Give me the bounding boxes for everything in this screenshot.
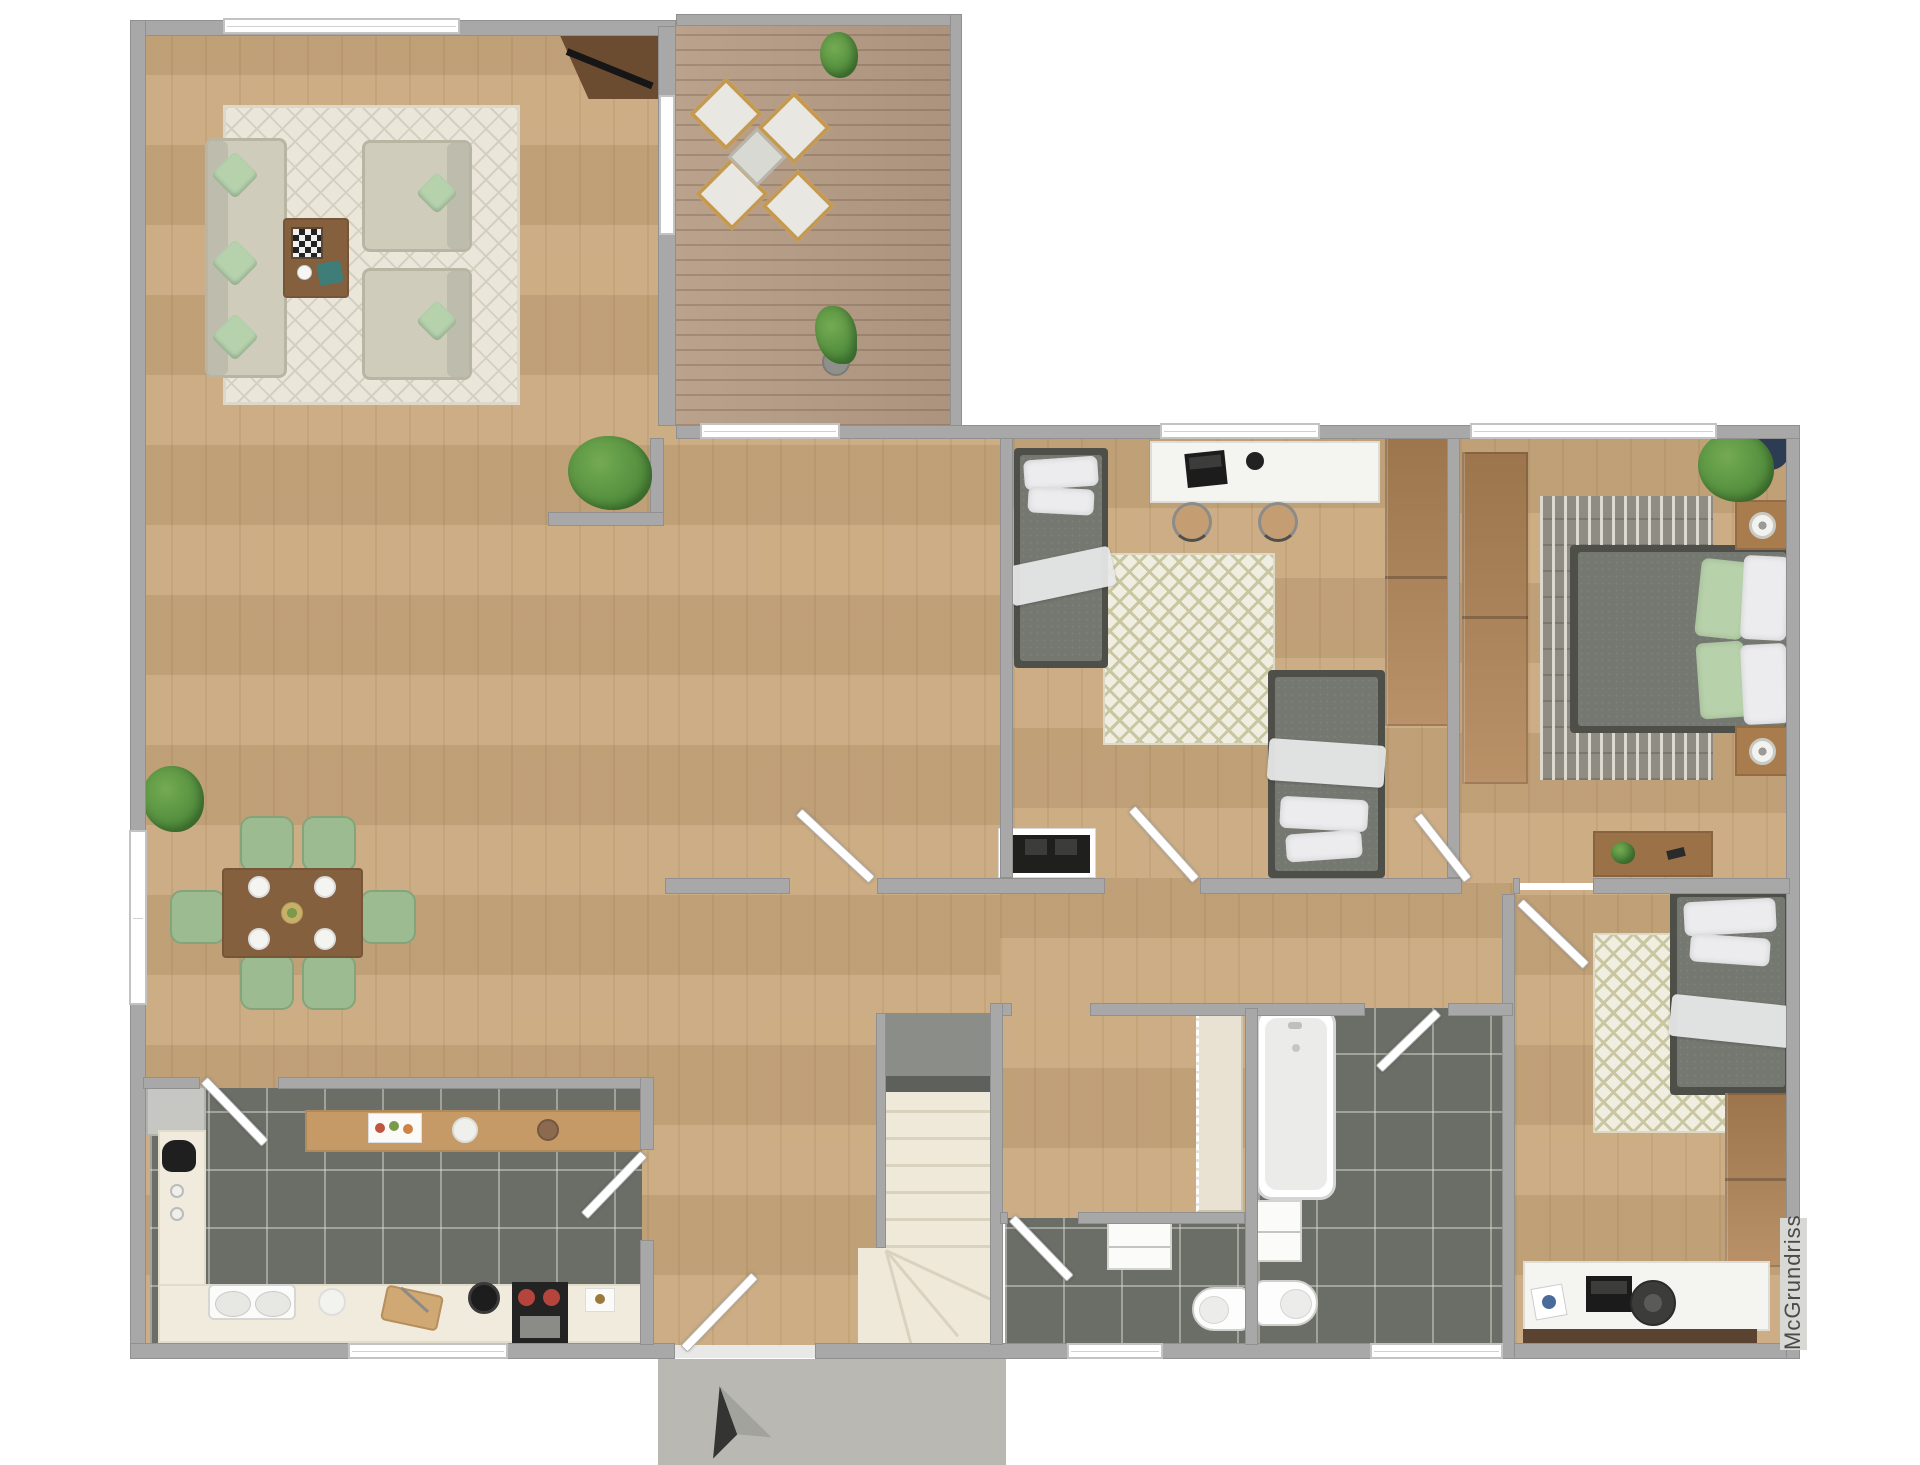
counter-plate — [318, 1288, 346, 1316]
floor-plan-canvas: McGrundriss — [0, 0, 1920, 1465]
book — [316, 260, 343, 286]
counter-item — [585, 1288, 615, 1312]
bathroom-toilet — [1256, 1280, 1318, 1326]
wall-bath-wc — [1245, 1008, 1258, 1345]
kitchen-window — [348, 1343, 508, 1359]
bathtub-drain — [1292, 1044, 1300, 1052]
dining-plate-1 — [248, 876, 270, 898]
wall-stairs-left — [990, 1003, 1003, 1345]
wc-cabinet-line — [1109, 1246, 1170, 1248]
sink-basin-right — [255, 1291, 291, 1317]
master-desk — [1593, 831, 1713, 877]
dining-centerpiece — [281, 902, 303, 924]
double-sink — [208, 1284, 296, 1320]
kids-wardrobe-line — [1385, 576, 1450, 579]
master-plant — [1698, 432, 1774, 502]
kids-bed-1-pillow-2 — [1027, 486, 1094, 515]
wall-kids-master — [1447, 438, 1460, 878]
dining-window — [129, 830, 147, 1005]
kitchen-knob-1 — [170, 1184, 184, 1198]
fruit-green — [389, 1121, 399, 1131]
kids-sideboard-body — [1006, 835, 1090, 873]
master-desk-phone — [1666, 847, 1686, 860]
kids-desk — [1150, 441, 1380, 503]
bedroom3-laptop-screen — [1591, 1281, 1627, 1294]
wall-bottom-east — [815, 1343, 1800, 1359]
stair-rail-wall — [876, 1013, 886, 1248]
wall-wc-top-2 — [1078, 1212, 1245, 1224]
dining-chair-right — [360, 890, 416, 944]
kids-window — [1160, 423, 1320, 439]
wall-wc-top-1 — [1000, 1212, 1008, 1224]
wc-toilet-seat — [1199, 1296, 1229, 1324]
dining-plant — [142, 766, 204, 832]
bathtub-faucet — [1288, 1022, 1302, 1029]
master-desk-plant — [1611, 842, 1635, 864]
kids-desk-chair-2 — [1258, 502, 1298, 542]
wall-kitchen-right-2 — [640, 1240, 654, 1345]
master-wardrobe — [1462, 452, 1528, 784]
kids-bed-2-pillow-2 — [1285, 829, 1363, 862]
burner-2 — [543, 1289, 560, 1306]
wall-kitchen-top-2 — [278, 1077, 652, 1089]
wall-corridor-bottom-2 — [1090, 1003, 1365, 1016]
counter-item-dot — [595, 1294, 605, 1304]
kids-bed-1-pillow-1 — [1023, 455, 1099, 490]
hall-window — [700, 423, 840, 439]
kids-desk-lamp — [1246, 452, 1264, 470]
oven-front — [520, 1316, 560, 1338]
burner-1 — [518, 1289, 535, 1306]
bedroom3-wardrobe-line — [1725, 1178, 1790, 1181]
kids-sideboard-drawer-2 — [1055, 839, 1077, 855]
stair-landing-edge — [886, 1076, 1003, 1092]
coffee-maker — [162, 1140, 196, 1172]
kids-rug — [1103, 553, 1275, 745]
master-wardrobe-line — [1462, 616, 1528, 619]
bar-plate — [452, 1117, 478, 1143]
kids-laptop-screen — [1189, 454, 1222, 469]
hall-plant — [568, 436, 652, 510]
wall-corridor-bottom-3 — [1448, 1003, 1513, 1016]
terrace-plant-1 — [820, 32, 858, 78]
dining-chair-left — [170, 890, 226, 944]
wall-hall-rooms-3 — [1200, 878, 1462, 894]
kids-laptop — [1184, 450, 1227, 488]
bedroom3-desk-chair — [1630, 1280, 1676, 1326]
armchair-2 — [362, 268, 472, 380]
living-window — [223, 18, 460, 34]
master-lamp-2 — [1749, 738, 1776, 765]
stair-flight — [886, 1092, 1003, 1248]
chessboard — [291, 227, 323, 259]
dining-plate-2 — [314, 876, 336, 898]
dining-chair-bottom-1 — [240, 954, 294, 1010]
stair-landing — [886, 1013, 1003, 1083]
master-lamp-1 — [1749, 512, 1776, 539]
bathroom-window — [1370, 1343, 1503, 1359]
entry-threshold — [675, 1345, 815, 1358]
kitchen-knob-2 — [170, 1207, 184, 1221]
kids-sideboard-drawer-1 — [1025, 839, 1047, 855]
wall-hall-rooms-1 — [665, 878, 790, 894]
wc-wall-cabinet — [1107, 1222, 1172, 1270]
wall-kids-left — [1000, 438, 1013, 878]
master-pillow-white-1 — [1740, 555, 1790, 641]
wall-kitchen-right-1 — [640, 1077, 654, 1150]
cooking-pot — [468, 1282, 500, 1314]
watermark-text: McGrundriss — [1780, 1218, 1807, 1350]
sink-basin-left — [215, 1291, 251, 1317]
bar-bowl — [537, 1119, 559, 1141]
bedroom3-sill — [1523, 1329, 1757, 1343]
bedroom3-laptop — [1586, 1276, 1632, 1312]
master-window — [1470, 423, 1717, 439]
storage-closet — [1196, 1012, 1243, 1212]
wall-bedroom3-left — [1502, 894, 1515, 1359]
wall-terrace-top — [676, 14, 962, 26]
wc-window — [1067, 1343, 1163, 1359]
bar-tray — [368, 1113, 422, 1143]
dining-chair-top-1 — [240, 816, 294, 872]
dining-chair-bottom-2 — [302, 954, 356, 1010]
wall-hall-rooms-4 — [1593, 878, 1790, 894]
corridor-floor — [1000, 878, 1513, 1008]
wall-hall-rooms-pier — [1513, 878, 1520, 894]
fruit-red — [375, 1123, 385, 1133]
cup — [297, 265, 312, 280]
kids-desk-chair-1 — [1172, 502, 1212, 542]
kids-bed-2-fold — [1267, 738, 1387, 788]
terrace-sliding-door — [659, 95, 675, 235]
bedroom3-photo-dot — [1541, 1294, 1557, 1310]
wall-left — [130, 20, 146, 1359]
bedroom3-pillow-2 — [1689, 933, 1771, 967]
dining-chair-top-2 — [302, 816, 356, 872]
wall-hall-rooms-2 — [877, 878, 1105, 894]
bathroom-toilet-seat — [1280, 1289, 1312, 1319]
bedroom3-pillow-1 — [1683, 898, 1777, 937]
kids-bed-2-pillow-1 — [1279, 796, 1369, 833]
wall-terrace-right — [950, 14, 962, 438]
dining-plate-4 — [314, 928, 336, 950]
wc-toilet — [1192, 1287, 1248, 1331]
wall-stub-horizontal — [548, 512, 664, 526]
cooktop-oven — [512, 1282, 568, 1343]
armchair-1 — [362, 140, 472, 252]
bathroom-cabinet — [1256, 1200, 1302, 1262]
fridge — [146, 1086, 206, 1136]
bedroom3-photo — [1530, 1283, 1567, 1320]
bathroom-cabinet-line — [1258, 1231, 1300, 1233]
kids-wardrobe — [1385, 430, 1450, 726]
wall-kitchen-top-1 — [143, 1077, 200, 1089]
fruit-orange — [403, 1124, 413, 1134]
dining-plate-3 — [248, 928, 270, 950]
master-pillow-white-2 — [1740, 643, 1790, 725]
